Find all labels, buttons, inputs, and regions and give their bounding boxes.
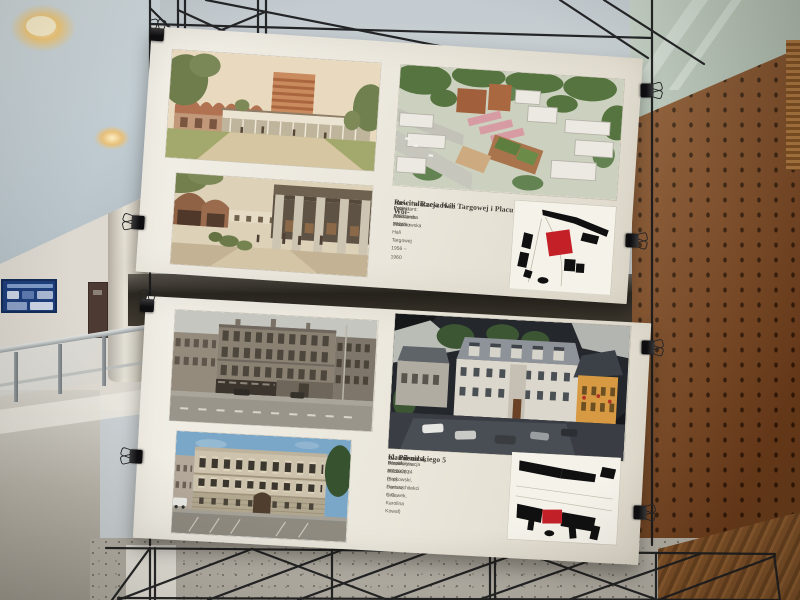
photo-tenement-street	[170, 310, 378, 432]
render-market-hall-exterior	[165, 50, 381, 172]
photo-renovated-facade-art	[171, 431, 351, 542]
binder-clip	[633, 505, 646, 519]
binder-clip	[641, 84, 654, 98]
render-tenement-aerial-art	[389, 313, 631, 461]
binder-clip	[641, 340, 654, 354]
poster-hala-targowa: Rewitalizacja Hali Targowej i Placu Wol-…	[136, 26, 643, 304]
binder-clip	[140, 299, 155, 313]
site-plan-kamienica-art	[508, 452, 621, 543]
render-market-hall-exterior-art	[165, 50, 381, 172]
binder-clip	[129, 449, 143, 464]
poster-kamienica: Kamienica, ul. Piłsudskiego 5 Rewaloryza…	[133, 296, 651, 565]
poster-top-text: Rewitalizacja Hali Targowej i Placu Wol-…	[395, 197, 528, 206]
binder-clip	[131, 215, 145, 230]
photo-renovated-facade	[171, 431, 351, 542]
credit-line: Lata powstania zespołu Hali Targowej 195…	[390, 204, 416, 262]
render-market-hall-canopies	[171, 173, 373, 277]
render-aerial-masterplan	[393, 65, 624, 200]
binder-clip	[150, 28, 165, 42]
render-market-hall-canopies-art	[171, 173, 373, 277]
site-plan-kamienica	[508, 452, 621, 545]
render-aerial-masterplan-art	[393, 65, 624, 200]
site-plan-hala-targowa	[509, 200, 615, 293]
site-plan-hala-targowa-art	[509, 200, 615, 295]
credit-line: Wzniesiona ok. 1908 r.	[387, 459, 414, 477]
exhibition-photo: Rewitalizacja Hali Targowej i Placu Wol-…	[0, 0, 800, 600]
photo-tenement-street-art	[170, 310, 378, 432]
render-tenement-aerial	[389, 313, 631, 461]
binder-clip	[625, 233, 638, 247]
